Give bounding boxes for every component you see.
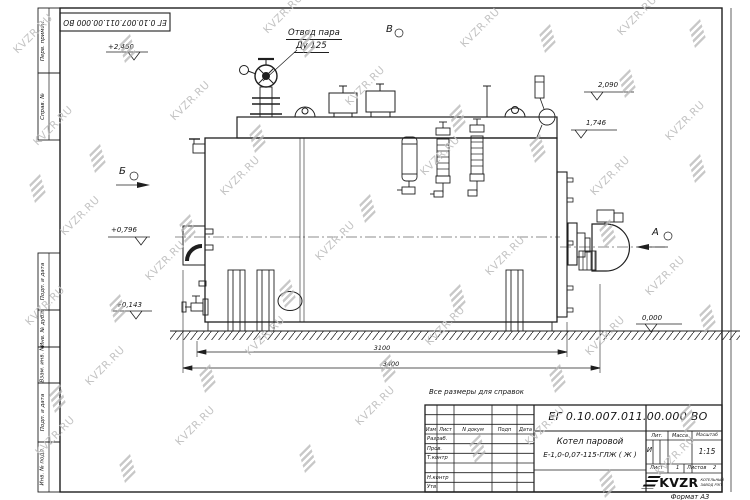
sheet-label: Лист <box>650 465 663 471</box>
product-name-line2: Е-1,0-0,07-115-ГЛЖ ( Ж ) <box>534 450 646 459</box>
row-label-razrab: Разраб. <box>427 436 447 442</box>
lit-value: И <box>645 446 654 454</box>
margin-label-sprav-no: Справ. № <box>38 73 49 140</box>
elevation-label-2090: 2,090 <box>598 81 618 89</box>
margin-label-podp-data-1: Подп. и дата <box>38 253 49 310</box>
sheets-label: Листов <box>687 465 706 471</box>
margin-label-vzam-inv: Взам. инв. № <box>38 347 49 383</box>
callout-dn125: Ду 125 <box>294 41 329 53</box>
col-header-izm: Изм <box>425 427 437 433</box>
view-label-v: В <box>386 24 393 35</box>
kvzr-logo-text: KVZR <box>659 475 698 490</box>
dimension-label-3100: 3100 <box>342 344 422 352</box>
top-stamp-doc-number: ЕГ 0.10.007.011.00.000 ВО <box>60 13 170 31</box>
row-label-prov: Пров. <box>427 446 442 452</box>
elevation-label-0796: +0,796 <box>111 226 137 234</box>
elevation-marks <box>106 52 682 332</box>
margin-label-perv-primen: Перв. примен. <box>38 8 49 73</box>
steam-valve <box>240 59 283 117</box>
dimension-label-3400: 3400 <box>351 360 431 368</box>
elevation-label-0143: +0,143 <box>116 301 142 309</box>
doc-number: ЕГ 0.10.007.011.00.000 ВО <box>536 410 720 423</box>
elevation-label-1746: 1,746 <box>586 119 606 127</box>
lit-header: Лит. <box>646 433 668 439</box>
burner <box>557 172 630 317</box>
view-label-b: Б <box>119 166 126 177</box>
pressure-gauge <box>535 76 544 98</box>
top-fittings <box>295 76 555 137</box>
elevation-label-2450: +2,450 <box>108 43 134 51</box>
drawing-linework <box>0 0 750 500</box>
ground-line <box>170 331 740 340</box>
elevation-label-0000: 0,000 <box>642 314 662 322</box>
row-label-utv: Утв. <box>427 484 438 490</box>
reference-note: Все размеры для справок <box>429 388 524 396</box>
col-header-list: Лист <box>437 427 454 433</box>
sheets-value: 2 <box>713 465 716 471</box>
sheet-value: 1 <box>676 465 679 471</box>
margin-label-inv-dubl: Инв. № дубл. <box>38 310 49 347</box>
massa-header: Масса <box>668 433 692 439</box>
masshtab-header: Масштаб <box>692 433 722 438</box>
row-label-tkontr: Т.контр <box>427 455 448 461</box>
level-gauges <box>397 119 484 197</box>
left-fittings <box>182 139 213 315</box>
drawing-sheet: ЕГ 0.10.007.011.00.000 ВО Перв. примен. … <box>0 0 750 500</box>
view-label-a: А <box>652 227 659 238</box>
scale-value: 1:15 <box>692 447 722 456</box>
format-label: Формат А3 <box>655 493 725 500</box>
col-header-ndokum: N докум <box>454 427 492 433</box>
col-header-podp: Подп <box>492 427 517 433</box>
margin-label-podp-data-2: Подп. и дата <box>38 383 49 442</box>
row-label-nkontr: Н.контр <box>427 475 449 481</box>
kvzr-logo-sub2: ЗАВОД РЭП <box>700 483 723 487</box>
col-header-data: Дата <box>517 427 534 433</box>
margin-label-inv-podl: Инв. № подл. <box>38 442 49 492</box>
callout-steam-outlet: Отвод пара <box>286 28 342 40</box>
product-name-line1: Котел паровой <box>534 437 646 447</box>
company-logo: KVZR КОТЕЛЬНЫЙ ЗАВОД РЭП <box>649 474 720 491</box>
